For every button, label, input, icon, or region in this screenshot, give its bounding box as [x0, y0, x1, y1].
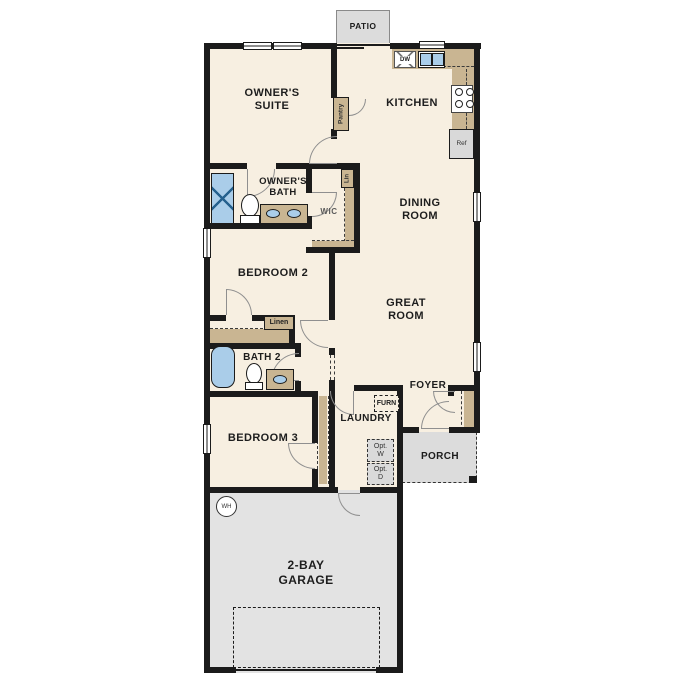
wall-bath2-right-b: [295, 381, 301, 391]
garage-door-outline: [233, 607, 380, 668]
great-room-label: GREAT ROOM: [386, 297, 426, 323]
lin-closet: Lin: [341, 169, 354, 188]
owners-suite-line2: SUITE: [245, 100, 300, 113]
bedroom3-closet-shelf: [319, 396, 327, 484]
lin-label: Lin: [342, 170, 353, 187]
wall-b2closet-top-a: [204, 315, 226, 321]
opt-dryer: Opt. D: [367, 463, 394, 485]
burner-icon: [466, 88, 474, 96]
wall-garage-bottom-right: [376, 667, 403, 673]
wall-b3closet-left-a: [312, 391, 318, 443]
patio-slider-line-1: [337, 44, 390, 46]
porch-post: [469, 476, 477, 483]
water-heater: WH: [216, 496, 237, 517]
garage-line2: GARAGE: [278, 573, 333, 588]
kitchen-label: KITCHEN: [386, 97, 438, 110]
stove-burners: [452, 86, 472, 112]
wall-left: [204, 43, 210, 673]
wic-shelf-right: [345, 188, 354, 247]
burner-icon: [455, 100, 463, 108]
burner-icon: [466, 100, 474, 108]
owners-suite-window-2: [273, 42, 302, 50]
wall-laundry-top: [354, 385, 403, 391]
opt-washer: Opt. W: [367, 439, 394, 462]
hall-opening-dash-a: [330, 355, 331, 380]
vanity-sink-icon: [273, 375, 287, 384]
dishwasher: DW: [394, 51, 416, 68]
bath2-vanity: [266, 369, 294, 390]
upper-cabinet-dash-v2: [466, 113, 467, 129]
foyer-closet-shelf: [464, 391, 474, 430]
owners-toilet-bowl: [241, 194, 259, 217]
patio-slider-line-2: [337, 47, 364, 49]
hall-opening-dash-b: [334, 355, 335, 380]
vanity-sink-icon: [287, 209, 301, 218]
linen-label: Linen: [270, 319, 289, 327]
foyer-label: FOYER: [410, 379, 446, 392]
dining-label: DINING ROOM: [400, 197, 441, 223]
bath2-toilet-tank: [245, 382, 263, 390]
kitchen-window: [419, 41, 445, 49]
owners-vanity: [260, 204, 308, 224]
laundry-label: LAUNDRY: [340, 412, 391, 425]
water-heater-label: WH: [222, 503, 232, 511]
bedroom3-label: BEDROOM 3: [228, 432, 298, 445]
vanity-sink-icon: [266, 209, 280, 218]
owners-shower: [211, 173, 234, 224]
owners-bath-line2: BATH: [259, 187, 307, 198]
bedroom3-window: [203, 424, 211, 454]
owners-suite-window-1: [243, 42, 272, 50]
sink-basin-right: [432, 53, 444, 66]
great-room-line1: GREAT: [386, 297, 426, 310]
furnace-label: FURN: [377, 400, 396, 408]
wic-shelf-bottom-dash: [312, 240, 354, 241]
pantry-label: Pantry: [334, 98, 348, 130]
bedroom2-window: [203, 228, 211, 258]
dining-line2: ROOM: [400, 210, 441, 223]
wall-wic-right: [354, 163, 360, 253]
bath2-tub: [211, 346, 235, 388]
owners-toilet-tank: [240, 215, 260, 224]
burner-icon: [455, 88, 463, 96]
dishwasher-label: DW: [399, 56, 411, 64]
garage-label: 2-BAY GARAGE: [278, 558, 333, 588]
opt-washer-line2: W: [377, 451, 384, 459]
wall-garage-bottom-left: [204, 667, 236, 673]
dining-line1: DINING: [400, 197, 441, 210]
bath2-toilet-bowl: [246, 363, 262, 384]
bedroom2-closet-shelf: [210, 329, 293, 343]
porch-label: PORCH: [421, 450, 459, 463]
furnace: FURN: [374, 395, 399, 412]
linen-closet: Linen: [264, 316, 294, 330]
owners-bath-line1: OWNER'S: [259, 176, 307, 187]
wall-hall-upper: [329, 253, 335, 320]
wall-garage-top-left: [204, 487, 338, 493]
great-room-window: [473, 342, 481, 372]
refrigerator: Ref: [449, 129, 474, 159]
upper-cabinet-dash-h: [443, 66, 474, 67]
kitchen-sink: [418, 51, 445, 68]
bedroom2-label: BEDROOM 2: [238, 267, 308, 280]
upper-cabinet-dash-v1: [466, 69, 467, 85]
wall-owners-suite-right: [331, 49, 337, 98]
great-room-line2: ROOM: [386, 310, 426, 323]
wic-shelf-dash: [344, 188, 345, 247]
opt-dryer-line1: Opt.: [374, 466, 387, 474]
wall-garage-top-right: [360, 487, 403, 493]
stove: [451, 85, 473, 113]
owners-bath-label: OWNER'S BATH: [259, 176, 307, 198]
patio-label: PATIO: [350, 20, 377, 33]
refrigerator-label: Ref: [456, 140, 466, 148]
foyer-closet-dash: [461, 391, 462, 430]
wall-hall-mid: [329, 348, 335, 355]
wall-owners-bath-top-a: [204, 163, 247, 169]
garage-line1: 2-BAY: [278, 558, 333, 573]
wall-porch-top-b: [449, 427, 480, 433]
bath2-label: BATH 2: [243, 351, 281, 364]
owners-suite-line1: OWNER'S: [245, 87, 300, 100]
opt-dryer-line2: D: [378, 474, 383, 482]
garage-door-sill: [236, 669, 376, 671]
wall-right-upper: [474, 43, 480, 433]
sink-basin-left: [420, 53, 432, 66]
pantry-closet: Pantry: [333, 97, 349, 131]
wall-b3closet-left-b: [312, 469, 318, 487]
dining-window: [473, 192, 481, 222]
owners-suite-label: OWNER'S SUITE: [245, 87, 300, 113]
opt-washer-line1: Opt.: [374, 443, 387, 451]
wall-bath2-bottom: [204, 391, 316, 397]
wic-label: WIC: [320, 205, 337, 218]
wall-porch-top-a: [403, 427, 419, 433]
floor-plan: PATIO: [0, 0, 687, 687]
